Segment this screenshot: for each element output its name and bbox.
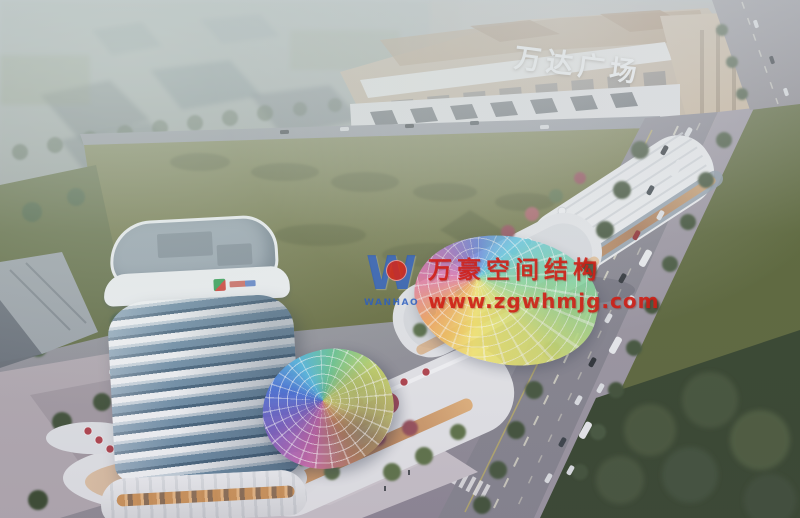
tower-brand-text: [229, 280, 255, 287]
aerial-rendering: 万达广场 W WANHAO 万豪空间结构 www.zgwhmjg.com: [0, 0, 800, 518]
tower-brand-logo: [213, 279, 226, 292]
highrise-tower: [100, 213, 304, 518]
